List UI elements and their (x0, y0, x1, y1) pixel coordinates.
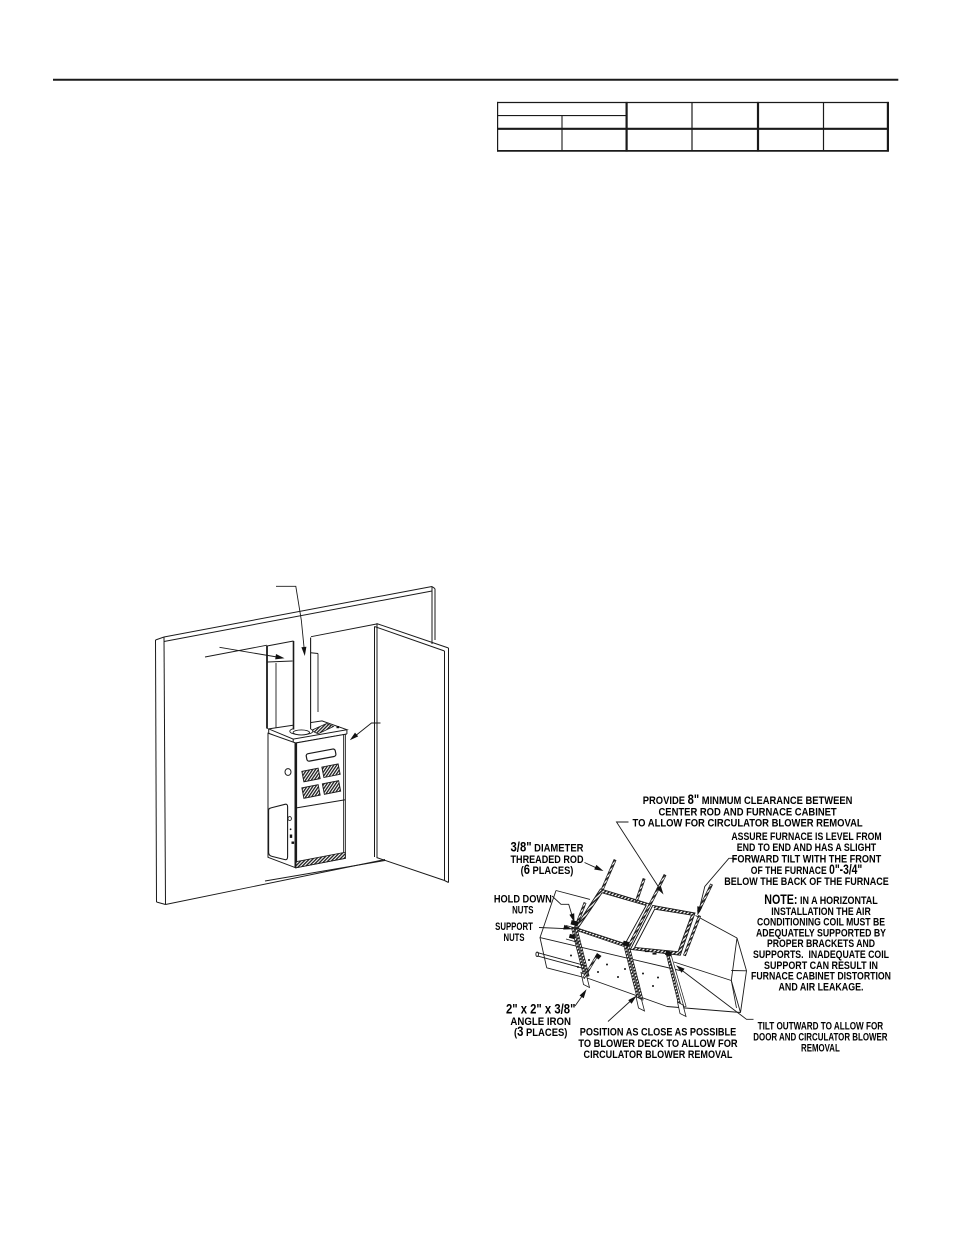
svg-text:(6 PLACES): (6 PLACES) (521, 862, 574, 877)
svg-text:NUTS: NUTS (504, 932, 525, 944)
svg-text:REMOVAL: REMOVAL (801, 1043, 840, 1055)
svg-text:THREADED ROD: THREADED ROD (511, 854, 584, 866)
svg-text:AND AIR LEAKAGE.: AND AIR LEAKAGE. (779, 981, 864, 993)
svg-text:CENTER ROD AND FURNACE CABINET: CENTER ROD AND FURNACE CABINET (659, 806, 837, 818)
svg-text:2" x 2" x 3/8": 2" x 2" x 3/8" (506, 1001, 576, 1016)
svg-text:ASSURE FURNACE IS LEVEL FROM: ASSURE FURNACE IS LEVEL FROM (731, 831, 881, 843)
svg-text:PROVIDE 8" MINMUM CLEARANCE BE: PROVIDE 8" MINMUM CLEARANCE BETWEEN (643, 792, 853, 807)
svg-text:3/8" DIAMETER: 3/8" DIAMETER (511, 840, 584, 855)
svg-text:BELOW THE BACK OF THE FURNACE: BELOW THE BACK OF THE FURNACE (724, 876, 889, 888)
svg-text:NUTS: NUTS (512, 904, 534, 916)
svg-text:END TO END AND HAS A SLIGHT: END TO END AND HAS A SLIGHT (737, 842, 876, 854)
svg-text:CIRCULATOR BLOWER REMOVAL: CIRCULATOR BLOWER REMOVAL (584, 1049, 733, 1061)
svg-text:POSITION AS CLOSE AS POSSIBLE: POSITION AS CLOSE AS POSSIBLE (580, 1027, 737, 1039)
svg-text:TO BLOWER DECK TO ALLOW FOR: TO BLOWER DECK TO ALLOW FOR (578, 1038, 737, 1050)
svg-text:OF THE FURNACE 0"-3/4": OF THE FURNACE 0"-3/4" (751, 862, 863, 877)
svg-text:(3 PLACES): (3 PLACES) (514, 1024, 568, 1039)
svg-text:TO ALLOW FOR CIRCULATOR BLOWER: TO ALLOW FOR CIRCULATOR BLOWER REMOVAL (633, 818, 863, 830)
svg-text:NOTE: IN A HORIZONTAL: NOTE: IN A HORIZONTAL (764, 892, 878, 907)
